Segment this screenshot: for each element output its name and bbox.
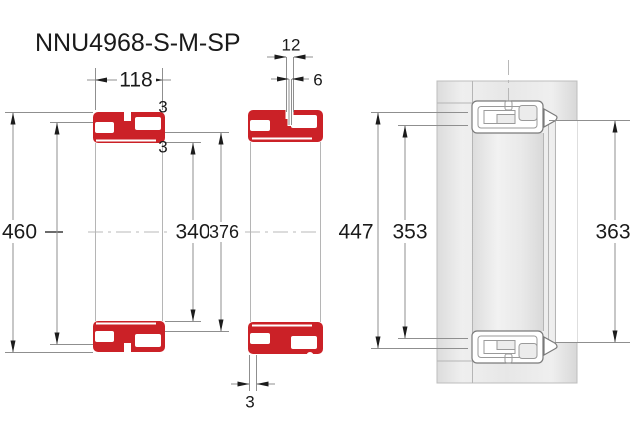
dim-groove-diameter-label: 447 xyxy=(338,221,373,244)
dimension-340: 340 xyxy=(165,143,211,322)
dim-hole-label: 6 xyxy=(313,71,322,90)
dim-width-label: 118 xyxy=(119,69,152,92)
dim-groove-width-label: 12 xyxy=(282,36,301,55)
dimension-flange-bottom-3: 3 xyxy=(231,355,275,412)
dim-outer-diameter-label: 460 xyxy=(2,221,37,244)
dim-bore-label: 340 xyxy=(175,221,210,244)
designation-title: NNU4968-S-M-SP xyxy=(35,29,241,57)
dim-flange-bottom-label: 3 xyxy=(245,393,254,412)
dim-inner-rib-diameter-label: 353 xyxy=(392,221,427,244)
dimension-460: 460 xyxy=(0,113,93,353)
shaft-surface xyxy=(473,133,543,331)
grooved-bottom-half xyxy=(248,322,323,359)
dimension-inner-groove xyxy=(50,123,93,345)
bearing-drawing-page: 118 12 6 460 340 376 xyxy=(0,0,640,440)
shaft-relief-notch xyxy=(555,121,577,343)
bearing-grooved-section-view xyxy=(245,110,323,359)
dim-shoulder-diameter-label: 363 xyxy=(595,221,630,244)
dim-rib-diameter-label: 376 xyxy=(209,222,239,242)
bearing-section-view xyxy=(88,112,168,352)
dim-flange-top-inner-label: 3 xyxy=(158,138,167,157)
dim-flange-top-label: 3 xyxy=(158,98,167,117)
mounted-arrangement-view xyxy=(437,60,577,383)
technical-drawing: 118 12 6 460 340 376 xyxy=(0,0,640,440)
